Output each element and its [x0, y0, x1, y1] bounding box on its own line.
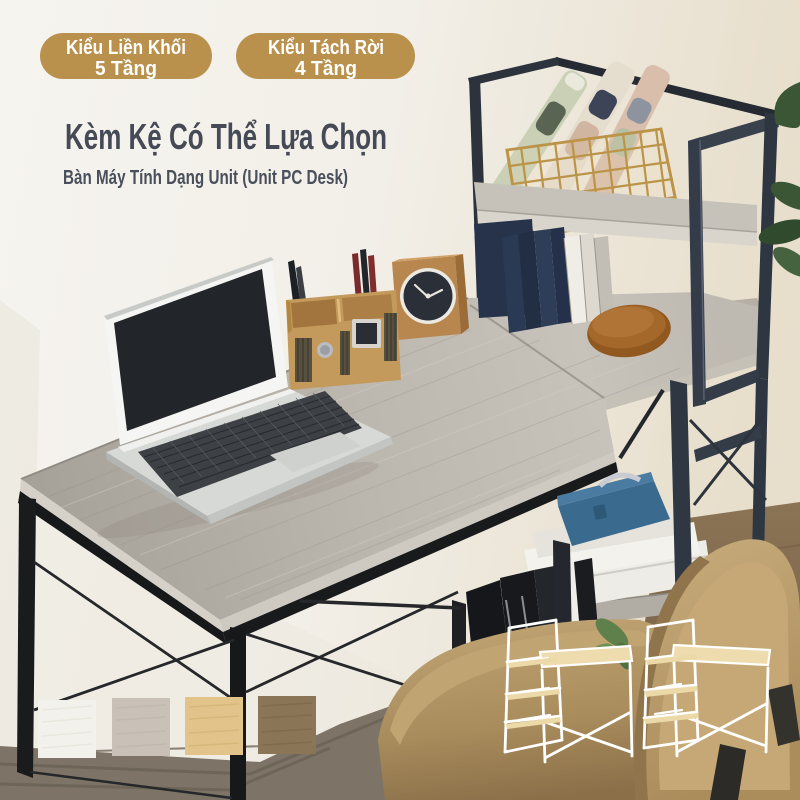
svg-text:Kèm Kệ Có Thể Lựa Chọn: Kèm Kệ Có Thể Lựa Chọn — [65, 116, 387, 157]
svg-text:4 Tầng: 4 Tầng — [295, 58, 357, 80]
svg-text:Kiểu Tách Rời: Kiểu Tách Rời — [268, 37, 384, 59]
svg-text:Bàn Máy Tính Dạng Unit (Unit P: Bàn Máy Tính Dạng Unit (Unit PC Desk) — [63, 167, 348, 189]
svg-text:Kiểu Liền Khối: Kiểu Liền Khối — [66, 37, 186, 59]
svg-text:5 Tầng: 5 Tầng — [95, 58, 157, 80]
